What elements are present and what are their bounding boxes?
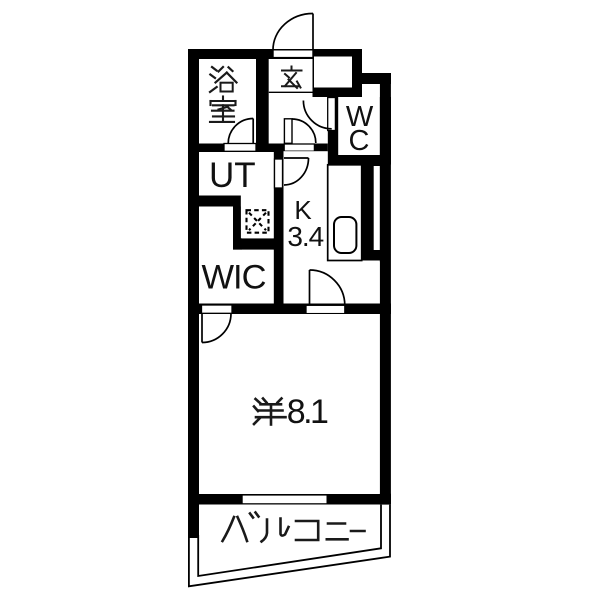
svg-text:C: C xyxy=(349,125,370,157)
svg-text:8.1: 8.1 xyxy=(287,393,328,431)
svg-text:UT: UT xyxy=(209,156,256,195)
svg-text:3.4: 3.4 xyxy=(287,221,323,252)
svg-text:WIC: WIC xyxy=(201,259,265,297)
